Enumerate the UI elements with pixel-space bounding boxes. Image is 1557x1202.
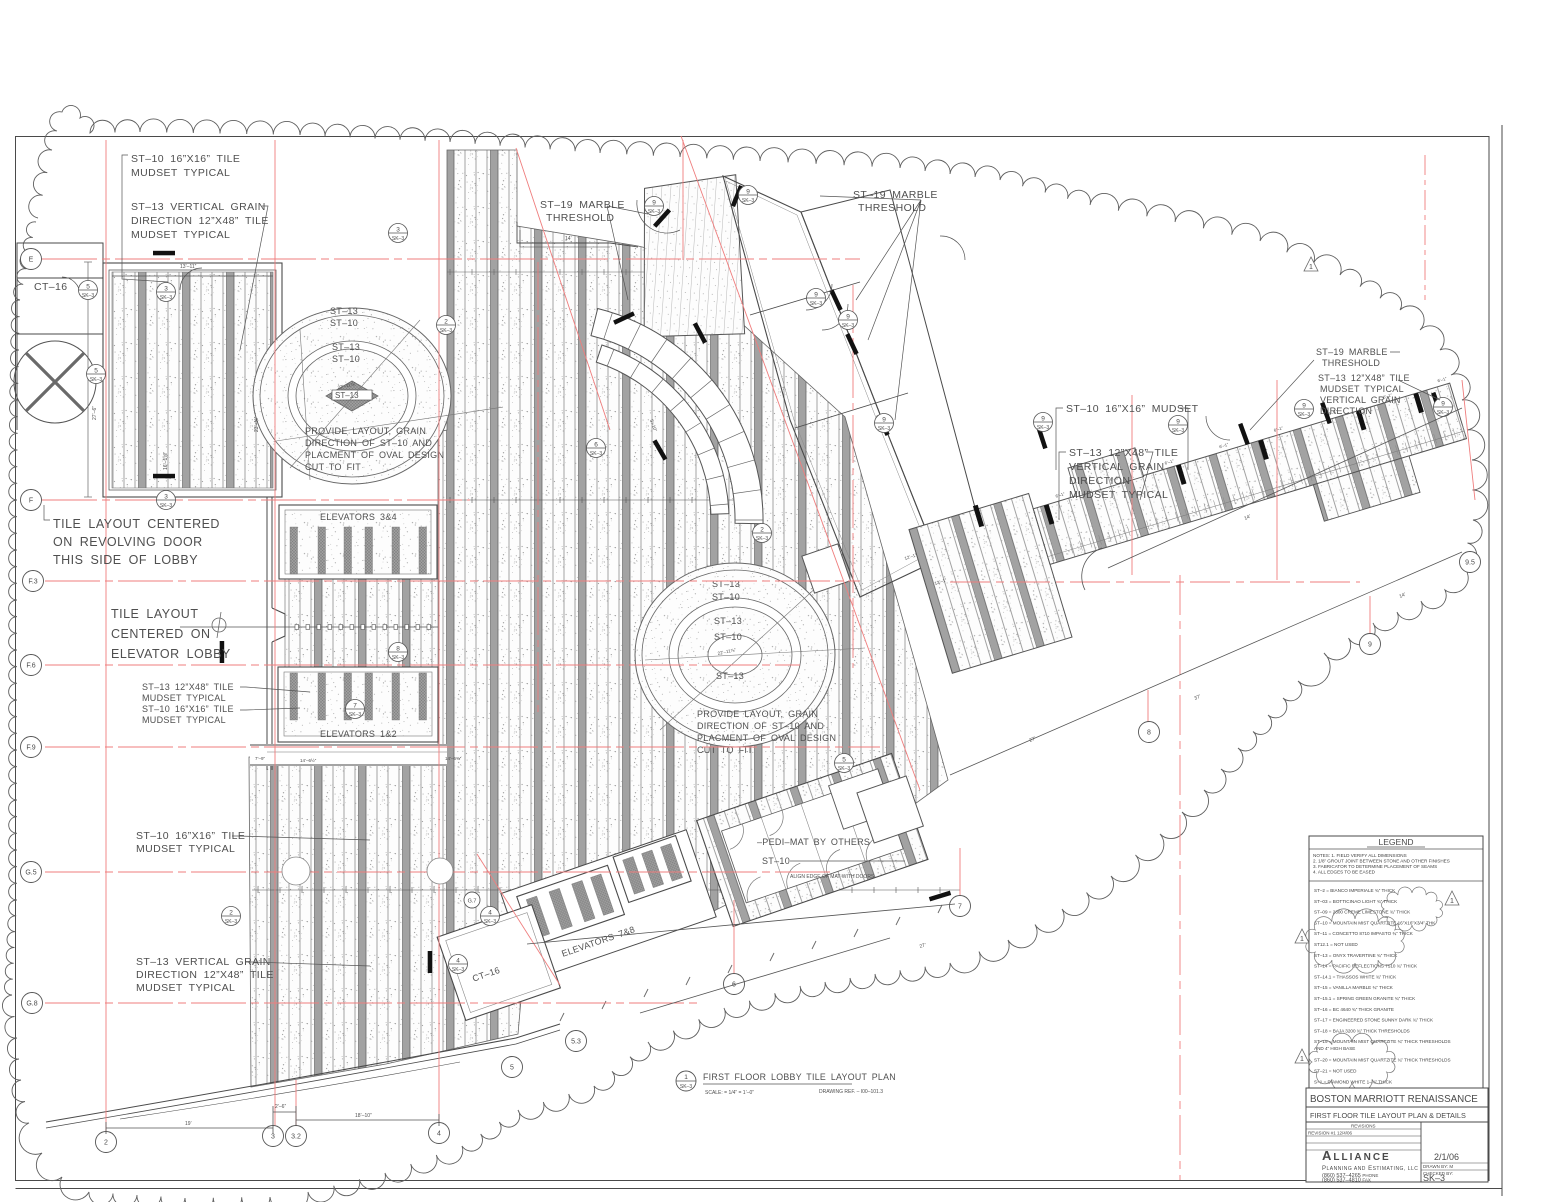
svg-text:SK–3: SK–3 [756,536,768,542]
svg-text:NOTES: 1. FIELD VERIFY ALL D: NOTES: 1. FIELD VERIFY ALL DIMENSIONS [1313,853,1407,858]
svg-text:DRAWING REF. – I00–101.3: DRAWING REF. – I00–101.3 [819,1089,883,1095]
svg-text:ST–13 12”X48” TILE: ST–13 12”X48” TILE [142,682,234,692]
svg-text:3: 3 [396,227,400,234]
svg-text:ELEVATORS 1&2: ELEVATORS 1&2 [320,729,397,739]
svg-text:ST–10: ST–10 [332,354,360,364]
svg-text:AND 4” HIGH BASE: AND 4” HIGH BASE [1314,1046,1355,1051]
svg-text:ST–19 MARBLE: ST–19 MARBLE [1316,347,1388,357]
svg-text:THRESHOLD: THRESHOLD [546,212,614,224]
svg-text:DIRECTION 12”X48” TILE: DIRECTION 12”X48” TILE [131,215,269,227]
svg-text:MUDSET TYPICAL: MUDSET TYPICAL [136,843,235,855]
svg-text:ST–14 = PACIFIC REFLECTIONS: ST–14 = PACIFIC REFLECTIONS 7510 ¾” THIC… [1314,964,1418,969]
svg-text:3: 3 [164,494,168,501]
svg-text:1: 1 [684,1074,688,1081]
svg-text:23’–⅝”: 23’–⅝” [254,416,260,432]
svg-text:CUT TO FIT: CUT TO FIT [697,745,753,755]
svg-text:9: 9 [814,292,818,299]
svg-text:–PEDI–MAT BY OTHERS: –PEDI–MAT BY OTHERS [757,837,870,847]
svg-text:MUDSET TYPICAL: MUDSET TYPICAL [131,167,230,179]
svg-text:SK–3: SK–3 [648,209,660,215]
svg-text:MUDSET TYPICAL: MUDSET TYPICAL [1069,489,1168,501]
svg-text:7: 7 [958,904,962,911]
svg-text:SK–3: SK–3 [590,451,602,457]
svg-text:SK–3: SK–3 [1437,410,1449,416]
svg-text:1: 1 [1309,264,1313,271]
svg-text:ST–13: ST–13 [716,671,744,681]
svg-text:ST–13: ST–13 [335,391,359,400]
svg-text:MUDSET TYPICAL: MUDSET TYPICAL [136,982,235,994]
svg-text:REVISION #1 12/4/06: REVISION #1 12/4/06 [1308,1131,1353,1136]
svg-text:G.5: G.5 [25,870,36,877]
svg-text:SK–3: SK–3 [742,198,754,204]
svg-text:27’–6”: 27’–6” [92,406,98,420]
svg-text:ST–13: ST–13 [332,342,360,352]
svg-text:SK–3: SK–3 [440,328,452,334]
svg-text:F.3: F.3 [28,579,37,586]
svg-text:ST–03 = BOTTICINAO LIGHT ¾”: ST–03 = BOTTICINAO LIGHT ¾” THICK [1314,899,1398,904]
svg-text:ST–10: ST–10 [712,592,740,602]
svg-text:8: 8 [1147,730,1151,737]
svg-text:4: 4 [488,910,492,917]
svg-text:14’–6⅜”: 14’–6⅜” [445,756,462,761]
svg-text:ON REVOLVING DOOR: ON REVOLVING DOOR [53,535,203,549]
svg-text:ST–14.1 = THASSOS WHITE ¾” T: ST–14.1 = THASSOS WHITE ¾” THICK [1314,974,1397,979]
svg-text:18’–10”: 18’–10” [355,1113,372,1119]
svg-text:SK–3: SK–3 [90,377,102,383]
svg-text:THIS SIDE OF LOBBY: THIS SIDE OF LOBBY [53,553,198,567]
svg-text:9: 9 [1302,403,1306,410]
svg-text:CENTERED ON: CENTERED ON [111,627,210,641]
svg-text:SK–3: SK–3 [1423,1173,1445,1183]
svg-text:THRESHOLD: THRESHOLD [858,202,926,214]
svg-text:ST–20 = MOUNTAIN MIST QUARTZ: ST–20 = MOUNTAIN MIST QUARTZITE ¾” THICK… [1314,1058,1451,1063]
svg-text:ST–2 = BIANCO IMPERIALE ¾” T: ST–2 = BIANCO IMPERIALE ¾” THICK [1314,888,1396,893]
svg-text:ST–16 = BC 4640 ¾” THICK GRA: ST–16 = BC 4640 ¾” THICK GRANITE [1314,1007,1394,1012]
svg-text:5: 5 [94,368,98,375]
svg-text:SK–3: SK–3 [484,919,496,925]
svg-text:REVISIONS: REVISIONS [1351,1124,1376,1129]
svg-text:MUDSET TYPICAL: MUDSET TYPICAL [131,229,230,241]
svg-text:1: 1 [1450,898,1454,905]
svg-text:2’–6”: 2’–6” [275,1104,286,1110]
svg-text:3: 3 [271,1134,275,1141]
svg-text:5: 5 [86,284,90,291]
svg-text:SK–3: SK–3 [1172,428,1184,434]
svg-text:SK–3: SK–3 [1037,425,1049,431]
svg-text:2: 2 [229,910,233,917]
svg-text:ST–19 MARBLE: ST–19 MARBLE [540,199,625,211]
svg-text:ST–10: ST–10 [330,318,358,328]
svg-text:SK–3: SK–3 [452,967,464,973]
svg-text:4: 4 [437,1131,441,1138]
svg-text:ST–13: ST–13 [330,306,358,316]
svg-text:BOSTON MARRIOTT RENAISSANCE: BOSTON MARRIOTT RENAISSANCE [1310,1094,1478,1105]
svg-text:SK–3: SK–3 [838,766,850,772]
svg-text:9: 9 [746,189,750,196]
svg-text:CT–16: CT–16 [34,281,68,293]
svg-text:SK–3: SK–3 [392,655,404,661]
svg-text:9.5: 9.5 [1465,560,1475,567]
svg-text:3. FABRICATOR TO DETERMINE PL: 3. FABRICATOR TO DETERMINE PLACEMENT OF … [1313,864,1437,869]
svg-text:FIRST FLOOR TILE LAYOUT PLA: FIRST FLOOR TILE LAYOUT PLAN & DETAILS [1310,1111,1466,1120]
svg-text:6: 6 [594,442,598,449]
svg-text:LEGEND: LEGEND [1379,837,1414,847]
svg-text:DIRECTION: DIRECTION [1320,406,1372,416]
svg-text:PROVIDE LAYOUT, GRAIN: PROVIDE LAYOUT, GRAIN [305,426,426,436]
svg-text:9: 9 [652,200,656,207]
svg-text:DRAWN BY: M: DRAWN BY: M [1423,1164,1453,1169]
svg-text:9: 9 [1176,419,1180,426]
svg-text:9: 9 [882,417,886,424]
svg-text:ST–10 16”X16” MUDSET: ST–10 16”X16” MUDSET [1066,403,1199,415]
svg-text:ST–18 = BAJA 3200 ¾” THICK T: ST–18 = BAJA 3200 ¾” THICK THRESHOLDS [1314,1028,1410,1033]
svg-text:DIRECTION 12”X48” TILE: DIRECTION 12”X48” TILE [136,969,274,981]
svg-text:SK–3: SK–3 [1298,412,1310,418]
svg-text:SK–3: SK–3 [82,293,94,299]
svg-text:13’–11”: 13’–11” [180,264,197,270]
svg-text:ST–10: ST–10 [762,856,790,866]
svg-text:PLACMENT OF OVAL DESIGN: PLACMENT OF OVAL DESIGN [697,733,836,743]
svg-text:ST–13 VERTICAL GRAIN: ST–13 VERTICAL GRAIN [136,956,271,968]
svg-text:TILE LAYOUT CENTERED: TILE LAYOUT CENTERED [53,517,220,531]
svg-text:8: 8 [396,646,400,653]
svg-text:VERTICAL GRAIN: VERTICAL GRAIN [1069,461,1165,473]
svg-text:ST–10 16”X16” TILE: ST–10 16”X16” TILE [131,153,240,165]
svg-text:ST–13 = ONYX TRAVERTINE ¾” T: ST–13 = ONYX TRAVERTINE ¾” THICK [1314,953,1398,958]
svg-text:4: 4 [456,958,460,965]
svg-text:F.6: F.6 [26,663,35,670]
svg-text:9: 9 [1041,416,1045,423]
svg-text:F.9: F.9 [26,745,35,752]
svg-text:ST–10 = MOUNTAIN MIST QUARTZ: ST–10 = MOUNTAIN MIST QUARTZITE 16”X16”X… [1314,920,1436,925]
svg-text:DIRECTION OF ST–10 AND: DIRECTION OF ST–10 AND [697,721,824,731]
svg-text:16’–1⅝”: 16’–1⅝” [163,452,169,470]
svg-text:PLANNING AND ESTIMATING, LLC: PLANNING AND ESTIMATING, LLC [1322,1166,1418,1172]
svg-text:ST–13 12”X48” TILE: ST–13 12”X48” TILE [1318,373,1410,383]
svg-text:CUT TO FIT: CUT TO FIT [305,462,361,472]
svg-text:1: 1 [1300,936,1304,943]
svg-text:SK–3: SK–3 [842,323,854,329]
svg-text:14’–6½”: 14’–6½” [300,757,317,763]
svg-text:ELEVATOR LOBBY: ELEVATOR LOBBY [111,647,231,661]
svg-text:SCALE: = 1/4” = 1’–0”: SCALE: = 1/4” = 1’–0” [705,1090,754,1096]
svg-text:SK–3: SK–3 [810,301,822,307]
svg-text:ST–15.1 = SPRING GREEN GRANI: ST–15.1 = SPRING GREEN GRANITE ¾” THICK [1314,996,1416,1001]
svg-text:9: 9 [1441,401,1445,408]
svg-text:ST12.1 = NOT USED: ST12.1 = NOT USED [1314,942,1358,947]
svg-text:ST–10 16”X16” TILE: ST–10 16”X16” TILE [142,704,234,714]
svg-text:SK–3: SK–3 [160,295,172,301]
svg-text:14’: 14’ [565,236,572,242]
svg-text:ST–19 = MOUNTAIN MIST QUARTZ: ST–19 = MOUNTAIN MIST QUARTZITE ¾” THICK… [1314,1039,1451,1044]
svg-text:2: 2 [444,319,448,326]
svg-text:ST–17 = ENGINEERED STONE SUN: ST–17 = ENGINEERED STONE SUNNY DARK ¾” T… [1314,1018,1434,1023]
svg-text:TILE LAYOUT: TILE LAYOUT [111,607,198,621]
svg-text:ST–10: ST–10 [714,632,742,642]
svg-text:ST–09 = 2300 CREME LIMESTONE: ST–09 = 2300 CREME LIMESTONE ¾” THICK [1314,910,1411,915]
svg-text:2: 2 [104,1140,108,1147]
svg-text:ST–13: ST–13 [714,616,742,626]
svg-text:SK–3: SK–3 [392,236,404,242]
svg-text:4. ALL EDGES TO BE EASED: 4. ALL EDGES TO BE EASED [1313,870,1376,875]
svg-text:PROVIDE LAYOUT, GRAIN: PROVIDE LAYOUT, GRAIN [697,709,818,719]
svg-text:ST–21 = NOT USED: ST–21 = NOT USED [1314,1069,1357,1074]
svg-text:3.2: 3.2 [291,1134,301,1141]
svg-text:2. 1/8” GROUT JOINT BETWEEN S: 2. 1/8” GROUT JOINT BETWEEN STONE AND OT… [1313,859,1450,864]
svg-text:G.8: G.8 [26,1001,37,1008]
svg-text:ST–11 = CONCETTO 8710 IMPAST: ST–11 = CONCETTO 8710 IMPASTO ¾” THICK [1314,931,1414,936]
svg-text:FIRST FLOOR LOBBY TILE LAYOUT: FIRST FLOOR LOBBY TILE LAYOUT PLAN [703,1072,896,1082]
svg-text:2: 2 [760,527,764,534]
svg-text:MUDSET TYPICAL: MUDSET TYPICAL [142,693,226,703]
svg-text:19’: 19’ [185,1121,192,1127]
svg-text:F: F [29,498,33,505]
svg-text:ST–13 VERTICAL GRAIN: ST–13 VERTICAL GRAIN [131,201,266,213]
svg-text:5.3: 5.3 [571,1039,581,1046]
svg-text:5: 5 [510,1065,514,1072]
svg-text:MUDSET TYPICAL: MUDSET TYPICAL [1320,384,1404,394]
svg-text:ST–13 12”X48” TILE: ST–13 12”X48” TILE [1069,447,1178,459]
svg-text:ST–15 = VANILLA MARBLE ¾” TH: ST–15 = VANILLA MARBLE ¾” THICK [1314,985,1394,990]
svg-text:1: 1 [1300,1056,1304,1063]
svg-text:9: 9 [846,314,850,321]
svg-text:VERTICAL GRAIN: VERTICAL GRAIN [1320,395,1401,405]
svg-text:MUDSET TYPICAL: MUDSET TYPICAL [142,715,226,725]
svg-text:SK–3: SK–3 [878,426,890,432]
svg-text:ELEVATORS 3&4: ELEVATORS 3&4 [320,512,397,522]
svg-text:E: E [29,257,34,264]
svg-text:SK–3: SK–3 [349,712,361,718]
svg-text:G.7: G.7 [468,899,477,905]
svg-text:3: 3 [164,286,168,293]
svg-text:2/1/06: 2/1/06 [1434,1152,1459,1162]
svg-text:ST–13: ST–13 [712,579,740,589]
svg-text:THRESHOLD: THRESHOLD [1322,358,1380,368]
svg-text:9: 9 [1368,642,1372,649]
svg-text:ST–19 MARBLE: ST–19 MARBLE [853,189,938,201]
svg-text:PLACMENT OF OVAL DESIGN: PLACMENT OF OVAL DESIGN [305,450,444,460]
svg-text:ALIGN EDGE OF MAT WITH DOORS: ALIGN EDGE OF MAT WITH DOORS [790,874,875,880]
svg-text:DIRECTION: DIRECTION [1069,475,1130,487]
svg-text:7’–9”: 7’–9” [255,756,266,761]
svg-text:5: 5 [842,757,846,764]
svg-text:SK–3: SK–3 [160,503,172,509]
svg-text:DIRECTION OF ST–10 AND: DIRECTION OF ST–10 AND [305,438,432,448]
svg-text:SK–3: SK–3 [680,1084,692,1090]
svg-text:ST–10 16”X16” TILE: ST–10 16”X16” TILE [136,830,245,842]
svg-text:7: 7 [353,703,357,710]
svg-text:SK–3: SK–3 [225,919,237,925]
